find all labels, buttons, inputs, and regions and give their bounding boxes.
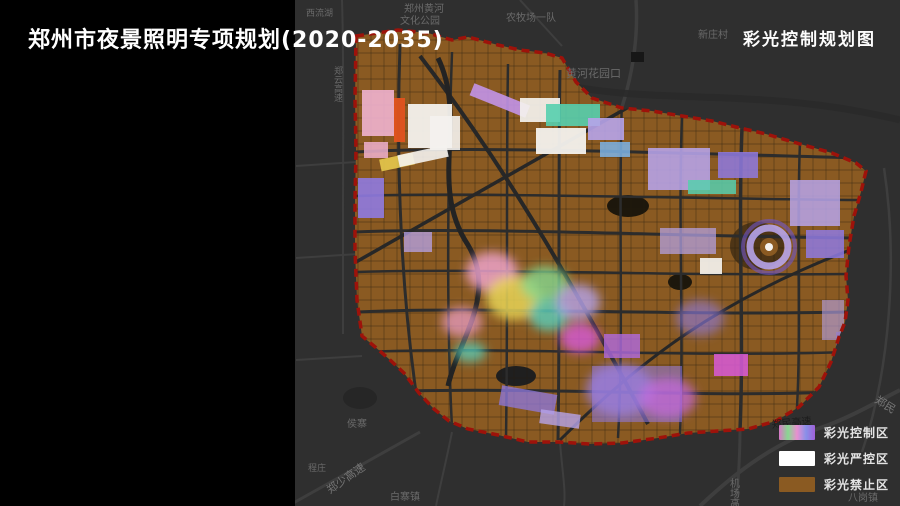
geo-label: 侯寨 bbox=[347, 417, 367, 430]
reservoir-patch bbox=[343, 387, 377, 409]
legend-label: 彩光禁止区 bbox=[824, 476, 889, 493]
geo-label: 郑州黄河 bbox=[404, 2, 444, 15]
legend: 彩光控制区 彩光严控区 彩光禁止区 bbox=[779, 424, 889, 493]
legend-label: 彩光严控区 bbox=[824, 450, 889, 467]
geo-label: 西流湖 bbox=[306, 7, 333, 19]
control-zone-swatch bbox=[779, 425, 815, 440]
legend-item-prohibited: 彩光禁止区 bbox=[779, 476, 889, 493]
map-title: 彩光控制规划图 bbox=[743, 25, 876, 50]
geo-label: 程庄 bbox=[308, 462, 326, 474]
cbd-ring bbox=[743, 221, 795, 273]
geo-label: 机场高速 bbox=[728, 477, 740, 506]
planning-map: 西流湖 郑州黄河 文化公园 农牧场一队 黄河花园口 新庄村 郑云高速 侯寨 程庄… bbox=[0, 0, 900, 506]
left-black-panel bbox=[0, 0, 295, 506]
geo-label: 农牧场一队 bbox=[506, 11, 556, 24]
legend-item-control: 彩光控制区 bbox=[779, 424, 889, 441]
geo-label: 新庄村 bbox=[698, 28, 728, 41]
screenshot-root: 西流湖 郑州黄河 文化公园 农牧场一队 黄河花园口 新庄村 郑云高速 侯寨 程庄… bbox=[0, 0, 900, 506]
strict-zone-swatch bbox=[779, 451, 815, 466]
prohibited-zone-swatch bbox=[779, 477, 815, 492]
legend-label: 彩光控制区 bbox=[824, 424, 889, 441]
geo-label: 白寨镇 bbox=[390, 490, 420, 503]
geo-label: 黄河花园口 bbox=[566, 66, 621, 80]
road-marker bbox=[631, 52, 644, 62]
page-title: 郑州市夜景照明专项规划(2020-2035) bbox=[28, 22, 444, 54]
geo-label: 郑云高速 bbox=[332, 65, 343, 103]
legend-item-strict: 彩光严控区 bbox=[779, 450, 889, 467]
